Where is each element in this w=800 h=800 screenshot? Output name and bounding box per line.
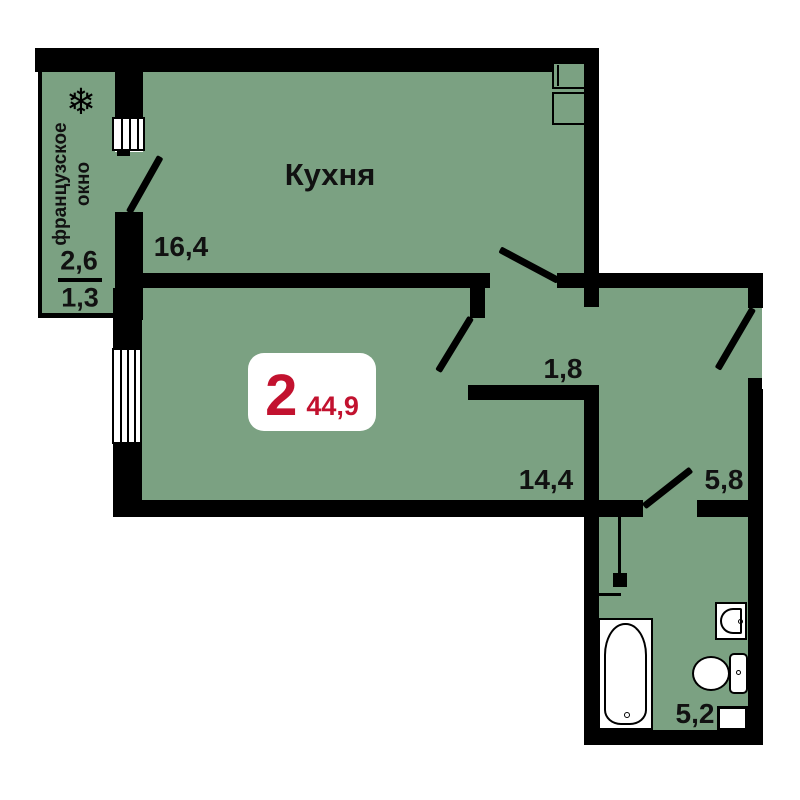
radiator-icon [112, 117, 145, 151]
bathtub-icon [598, 618, 653, 730]
main-floor [142, 288, 755, 500]
living-area: 14,4 [519, 464, 574, 496]
vent-shaft-icon [552, 92, 586, 125]
riser-line [598, 593, 621, 596]
bathroom-duct [717, 706, 748, 731]
wall-segment [697, 500, 763, 517]
total-area-label: 44,9 [306, 391, 359, 422]
balcony-label-line2: окно [72, 99, 95, 269]
balcony-area-reduced: 1,3 [61, 283, 99, 314]
wall-segment [468, 385, 599, 400]
toilet-icon [692, 656, 730, 691]
kitchen-name: Кухня [285, 157, 376, 193]
wall-segment [584, 500, 599, 745]
vent-shaft-icon [552, 62, 586, 89]
rooms-count-label: 2 [265, 367, 297, 425]
balcony-glazing [38, 70, 42, 318]
wall-segment [113, 500, 643, 517]
kitchen-area: 16,4 [154, 231, 209, 263]
wall-segment [584, 48, 599, 307]
toilet-tank [729, 653, 748, 694]
hallway-area: 1,8 [544, 353, 583, 385]
window-icon [112, 348, 142, 444]
wall-segment [748, 288, 763, 308]
floor-plan: Кухня 16,4 1,8 14,4 5,8 5,2 ❄ французско… [0, 0, 800, 800]
wall-segment [748, 378, 762, 389]
riser-valve [613, 573, 627, 587]
balcony-label-line1: французское [49, 99, 72, 269]
wall-segment [470, 288, 485, 318]
wall-segment [113, 444, 142, 517]
wall-segment [115, 72, 143, 118]
wall-segment [748, 389, 763, 745]
wall-segment [584, 730, 763, 745]
radiator-pipe [117, 149, 130, 156]
balcony-area-full: 2,6 [60, 246, 98, 277]
wall-segment [113, 288, 142, 348]
fraction-line [58, 278, 102, 282]
riser-line [618, 517, 621, 576]
wall-segment [584, 385, 599, 517]
corridor-area: 5,8 [705, 464, 744, 496]
wall-segment [35, 48, 599, 72]
apartment-badge: 2 44,9 [248, 353, 376, 431]
bathroom-area: 5,2 [676, 698, 715, 730]
balcony-label: французское окно [49, 99, 95, 269]
balcony-glazing [38, 313, 116, 318]
sink-icon [715, 602, 747, 640]
wall-segment [138, 273, 490, 288]
wall-segment [557, 273, 763, 288]
